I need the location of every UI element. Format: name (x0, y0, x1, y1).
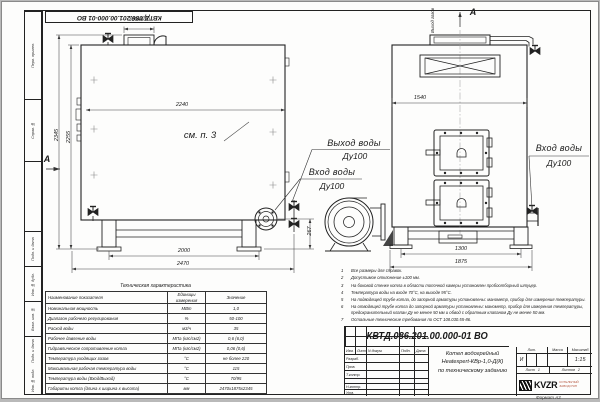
dim-duct: 300х600 (120, 17, 158, 23)
title-block-left-grid: Изм. Лист N докум. Подп. Дата Разраб. Пр… (345, 327, 428, 396)
side-view (76, 34, 299, 252)
lit-label: Лит. (517, 347, 548, 354)
spec-row: Максимальная рабочая температура воды°С1… (46, 364, 267, 374)
gas-outlet-label: Выход газов (430, 7, 445, 34)
kvzr-logo-text: KVZR (534, 380, 557, 390)
lower-furnace-door (426, 180, 492, 226)
col-date: Дата (415, 347, 428, 355)
role-row-approver: Утв. (345, 390, 428, 396)
drain-valve-icon (88, 207, 98, 216)
air-valve-icon (530, 46, 540, 55)
dim-height-inner: 2255 (66, 124, 72, 150)
note-6: 6На отводящей трубе котла до запорной ар… (338, 304, 590, 315)
gas-elbow (154, 36, 166, 45)
ash-box (439, 231, 477, 243)
dim-height-outer: 2345 (54, 122, 60, 148)
note-7: 7Остальные технические требования по ОСТ… (338, 317, 590, 323)
side-view-dimensions (46, 27, 314, 274)
spec-row: Температура уходящих газов°Сне более 220 (46, 354, 267, 364)
water-inlet-flange (255, 208, 277, 230)
spec-section: Техническая характеристика Наименование … (45, 283, 266, 394)
scale-value: 1:15 (568, 354, 592, 367)
role-row-tcontrol: Т.контр. (345, 371, 428, 379)
water-inlet-dn: Ду100 (309, 181, 355, 191)
right-leg (242, 220, 256, 247)
note-3: 3На боковой стенке котла в области топоч… (338, 283, 590, 289)
water-inlet-label: Вход воды (301, 167, 363, 177)
mass-label: Масса (548, 347, 569, 354)
field-podp-data-2: Подп. и дата (25, 336, 41, 366)
note-4: 4Температура воды на входе 70°С, на выхо… (338, 290, 590, 296)
note-1: 1Все размеры для справок. (338, 268, 590, 274)
mass-value (548, 354, 569, 367)
col-list: Лист (356, 347, 367, 355)
technical-notes: 1Все размеры для справок. 2Допустимое от… (338, 268, 590, 325)
field-sprav-no: Справ. № (25, 99, 41, 161)
dim-front-width: 1540 (402, 95, 438, 101)
title-block-right: Лит. Масса Масштаб И 1:15 Лист1 Листов2 (516, 347, 592, 396)
note-reference: см. п. 3 (174, 130, 226, 141)
upper-furnace-door (426, 130, 492, 176)
section-mark-a: А (40, 154, 54, 164)
field-podp-data-1: Подп. и дата (25, 231, 41, 266)
dim-front-base-inner: 1300 (443, 246, 479, 252)
dim-base-outer: 2470 (165, 261, 201, 267)
explosion-hatch-panel (420, 55, 500, 77)
spec-header-row: Наименование показателя Единицы измерени… (46, 292, 267, 304)
scale-label: Масштаб (568, 347, 592, 354)
dim-flange-height: 267 (307, 219, 313, 243)
spec-row: Расход водым3/ч35 (46, 324, 267, 334)
field-perv-primen: Перв. примен. (25, 11, 41, 99)
lit-value: И (517, 354, 527, 367)
sheet-number: Лист1 (517, 367, 550, 374)
drawing-sheet: КВТД.086.201.00.000-01 ВО Перв. примен. … (1, 1, 599, 399)
field-spacer (25, 161, 41, 231)
water-outlet-label: Выход воды (318, 138, 390, 148)
spec-header-name: Наименование показателя (46, 292, 168, 304)
gas-duct-connection (124, 35, 154, 45)
sheets-total: Листов2 (550, 367, 592, 374)
product-name: Котел водогрейный Heatexpert-КВр-1,0-Д(К… (428, 347, 516, 396)
spec-row: Гидравлическое сопротивление котлаМПа (к… (46, 344, 267, 354)
company-logo-row: KVZR КОТЕЛЬНЫЙ ЗАВОД РЭП (517, 374, 592, 396)
water-inlet-right-dn: Ду100 (536, 158, 582, 168)
field-inv-podl: Инв. № подл. (25, 366, 41, 394)
water-outlet-dn: Ду100 (332, 151, 378, 161)
revision-header-row: Изм. Лист N докум. Подп. Дата (345, 347, 428, 355)
note-5: 5На подводящей трубе котла, до запорной … (338, 297, 590, 303)
spec-table: Наименование показателя Единицы измерени… (45, 291, 267, 394)
left-frame-fields: Перв. примен. Справ. № Подп. и дата Инв.… (24, 10, 42, 395)
left-leg (102, 220, 116, 247)
dim-top-width: 2240 (164, 102, 200, 108)
spec-header-units: Единицы измерения (168, 292, 206, 304)
field-vzam-inv: Взам. инв. № (25, 301, 41, 336)
col-sign: Подп. (400, 347, 415, 355)
spec-row: Габариты котла (длина х ширина х высота)… (46, 384, 267, 394)
kvzr-logo-icon (519, 380, 532, 391)
dim-front-base-outer: 1875 (443, 259, 479, 265)
spec-table-title: Техническая характеристика (45, 283, 266, 289)
col-doc: N докум. (367, 347, 400, 355)
spec-row: Температура воды (Вход/Выход)°С70/95 (46, 374, 267, 384)
water-inlet-right-label: Вход воды (528, 143, 590, 153)
company-name: КОТЕЛЬНЫЙ ЗАВОД РЭП (559, 381, 578, 389)
dim-base-inner: 2000 (166, 248, 202, 254)
field-inv-dubl: Инв. № дубл. (25, 266, 41, 301)
title-block: КВТД.086.201.00.000-01 ВО Изм. Лист N до… (344, 326, 591, 395)
spec-row: Номинальная мощностьМВт1,0 (46, 304, 267, 314)
col-izm: Изм. (345, 347, 356, 355)
top-stamp: КВТД.086.201.00.000-01 ВО (45, 11, 193, 23)
role-row-developer: Разраб. (345, 355, 428, 363)
view-mark-a: А (466, 7, 480, 17)
role-row-checker: Пров. (345, 363, 428, 371)
spec-row: Диапазон рабочего регулирования%50-100 (46, 314, 267, 324)
front-view (390, 12, 540, 249)
note-leader (224, 122, 249, 141)
blower-fan (325, 198, 393, 251)
spec-header-value: Значение (206, 292, 267, 304)
note-2: 2Допустимое отклонение ±100 мм. (338, 275, 590, 281)
spec-row: Рабочее давление водыМПа (кгс/см2)0,6 (6… (46, 334, 267, 344)
